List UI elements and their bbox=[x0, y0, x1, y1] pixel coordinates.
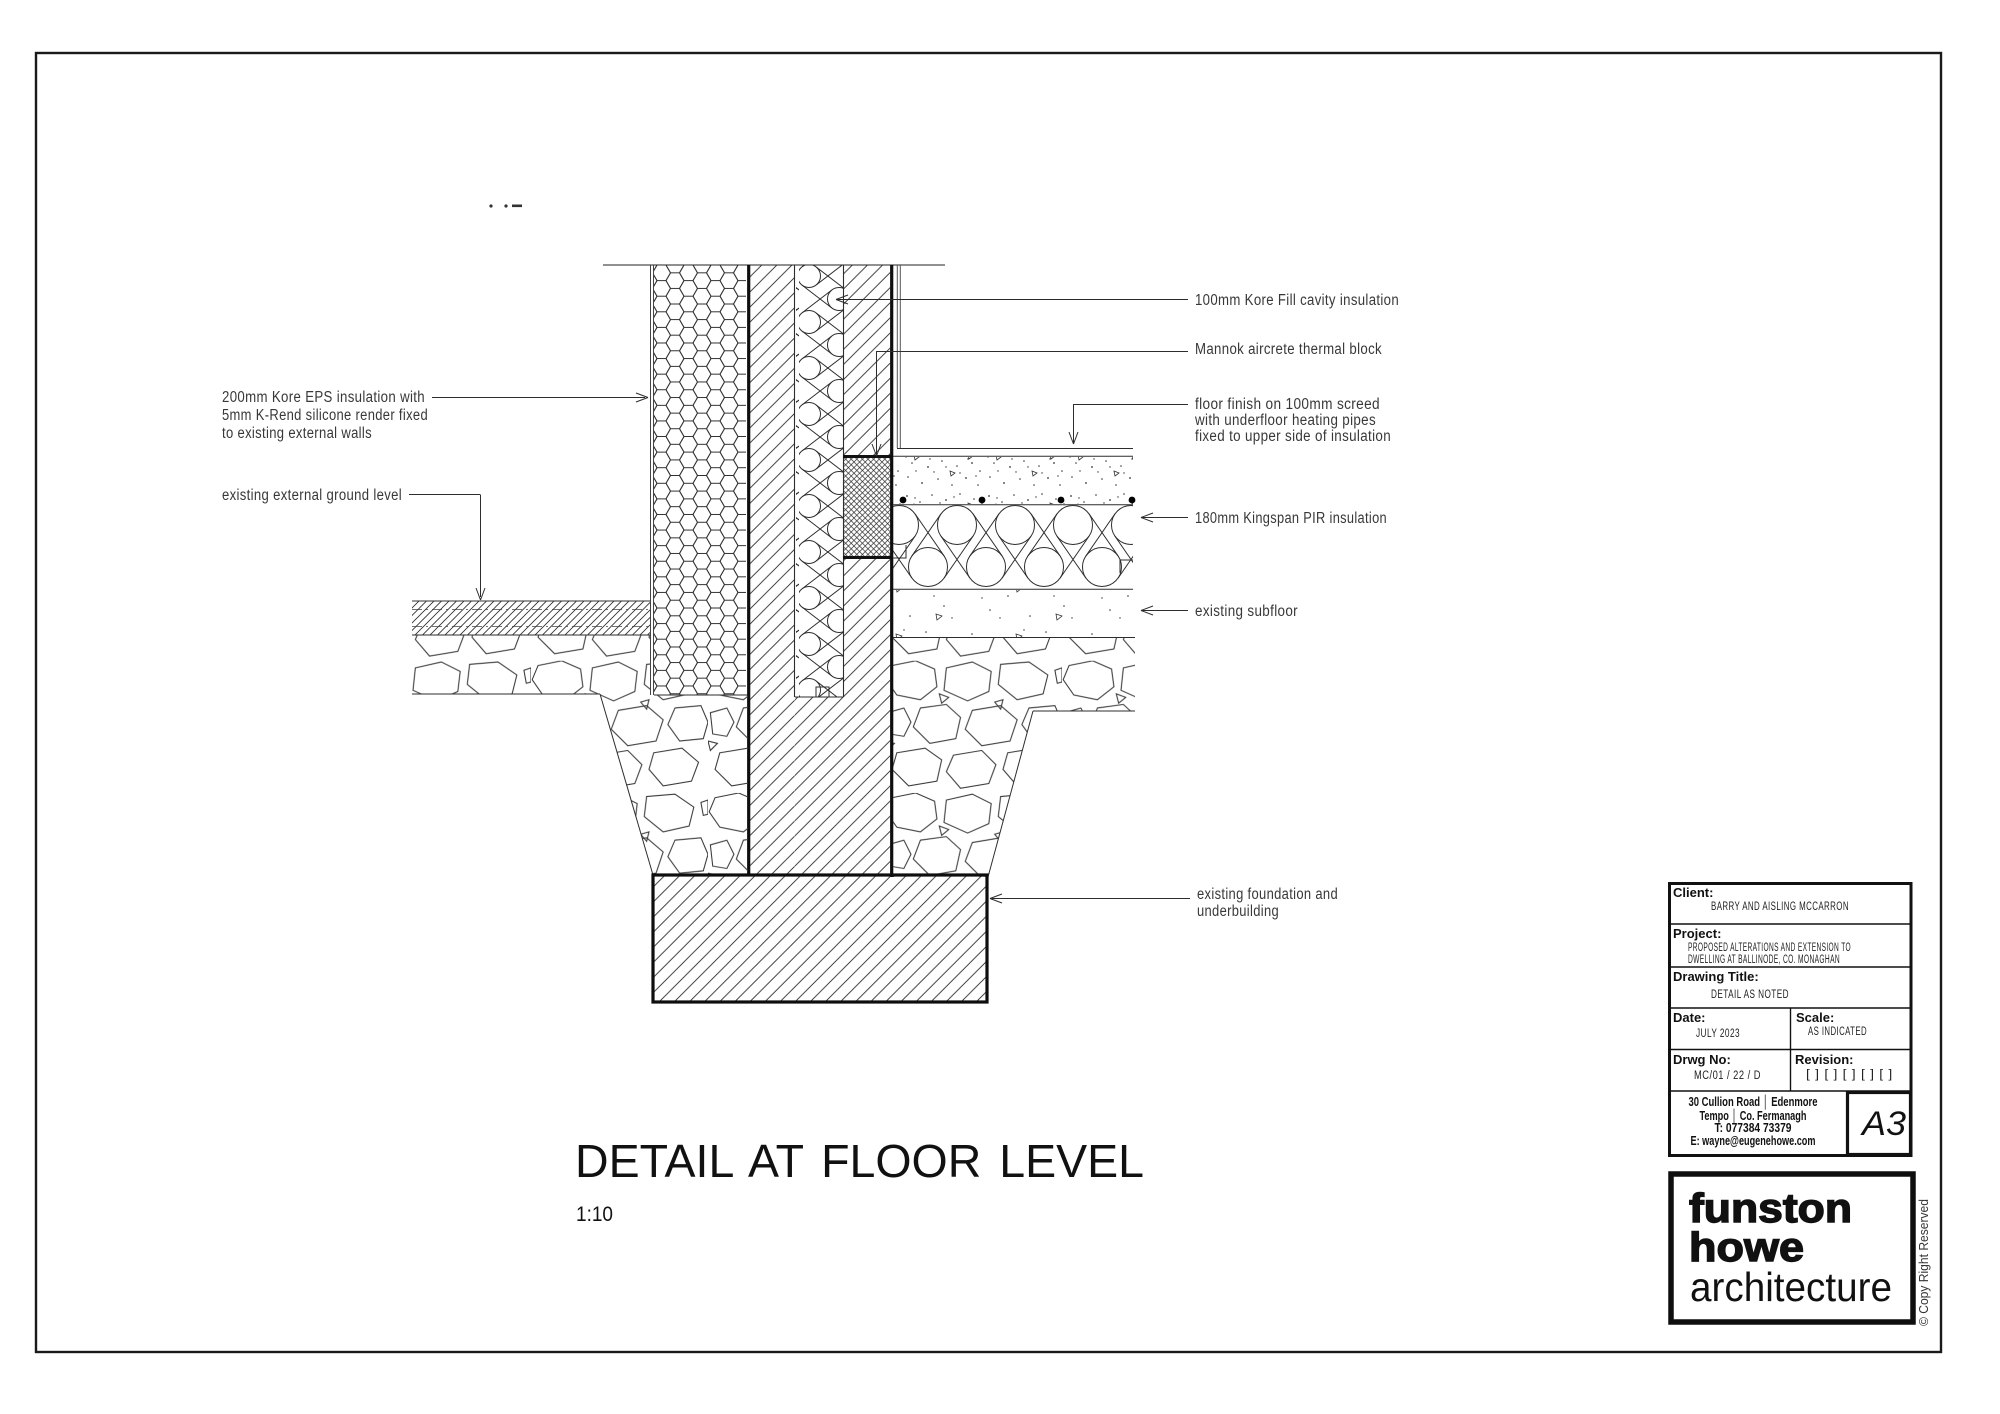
svg-text:E: wayne@eugenehowe.com: E: wayne@eugenehowe.com bbox=[1691, 1134, 1816, 1148]
svg-text:5mm K-Rend silicone render fix: 5mm K-Rend silicone render fixed bbox=[222, 407, 428, 424]
svg-text:fixed to upper side of insulat: fixed to upper side of insulation bbox=[1195, 428, 1391, 445]
svg-text:MC/01 / 22 / D: MC/01 / 22 / D bbox=[1694, 1070, 1761, 1082]
svg-text:Project:: Project: bbox=[1673, 926, 1721, 941]
svg-text:to existing external walls: to existing external walls bbox=[222, 425, 372, 442]
svg-text:© Copy Right Reserved: © Copy Right Reserved bbox=[1917, 1199, 1931, 1326]
svg-text:Client:: Client: bbox=[1673, 885, 1713, 900]
svg-text:Scale:: Scale: bbox=[1796, 1010, 1834, 1025]
svg-text:with underfloor heating pipes: with underfloor heating pipes bbox=[1194, 412, 1376, 429]
svg-text:AS INDICATED: AS INDICATED bbox=[1808, 1026, 1867, 1038]
svg-text:existing foundation and: existing foundation and bbox=[1197, 886, 1338, 903]
svg-text:200mm Kore EPS insulation with: 200mm Kore EPS insulation with bbox=[222, 389, 425, 406]
svg-text:DETAIL AT FLOOR LEVEL: DETAIL AT FLOOR LEVEL bbox=[575, 1135, 1144, 1187]
svg-text:existing external ground level: existing external ground level bbox=[222, 487, 402, 504]
svg-text:30 Cullion Road │ Edenmore: 30 Cullion Road │ Edenmore bbox=[1689, 1094, 1818, 1110]
svg-text:Drawing Title:: Drawing Title: bbox=[1673, 969, 1759, 984]
svg-text:BARRY AND AISLING MCCARRON: BARRY AND AISLING MCCARRON bbox=[1711, 901, 1849, 913]
svg-text:A3: A3 bbox=[1860, 1105, 1906, 1143]
svg-text:Mannok aircrete thermal block: Mannok aircrete thermal block bbox=[1195, 341, 1382, 358]
svg-text:DWELLING AT BALLINODE, CO. MON: DWELLING AT BALLINODE, CO. MONAGHAN bbox=[1688, 954, 1840, 966]
svg-text:PROPOSED ALTERATIONS AND EXTEN: PROPOSED ALTERATIONS AND EXTENSION TO bbox=[1688, 942, 1851, 954]
svg-text:architecture: architecture bbox=[1690, 1264, 1892, 1310]
svg-text:180mm Kingspan PIR insulation: 180mm Kingspan PIR insulation bbox=[1195, 510, 1387, 527]
svg-text:100mm Kore Fill cavity insulat: 100mm Kore Fill cavity insulation bbox=[1195, 292, 1399, 309]
svg-text:1:10: 1:10 bbox=[576, 1203, 613, 1226]
svg-text:JULY 2023: JULY 2023 bbox=[1696, 1028, 1740, 1040]
svg-text:existing subfloor: existing subfloor bbox=[1195, 603, 1298, 620]
svg-text:DETAIL AS NOTED: DETAIL AS NOTED bbox=[1711, 989, 1789, 1001]
svg-text:Drwg No:: Drwg No: bbox=[1673, 1052, 1731, 1067]
svg-text:floor finish on 100mm screed: floor finish on 100mm screed bbox=[1195, 396, 1380, 413]
svg-text:Date:: Date: bbox=[1673, 1010, 1706, 1025]
svg-text:Revision:: Revision: bbox=[1795, 1052, 1854, 1067]
svg-text:[ ] [ ] [ ] [ ] [ ]: [ ] [ ] [ ] [ ] [ ] bbox=[1806, 1069, 1893, 1081]
svg-text:underbuilding: underbuilding bbox=[1197, 903, 1279, 920]
svg-text:T: 077384 73379: T: 077384 73379 bbox=[1715, 1121, 1792, 1135]
